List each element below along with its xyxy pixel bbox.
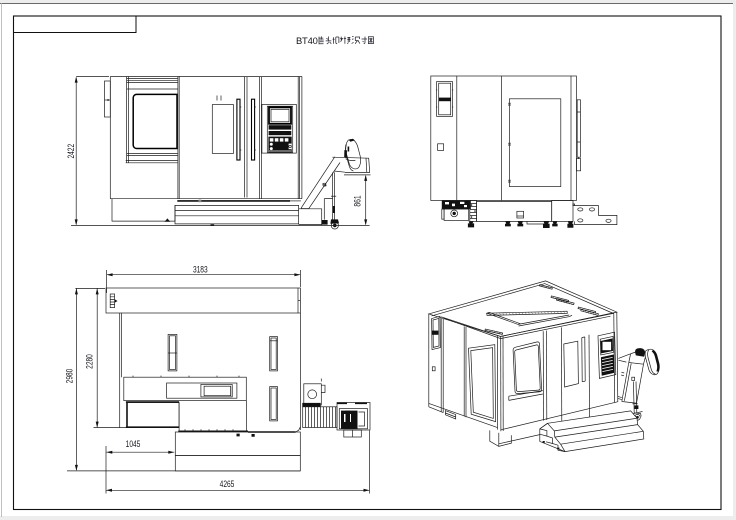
svg-text:4265: 4265 xyxy=(220,479,235,489)
svg-text:2422: 2422 xyxy=(66,144,76,159)
svg-text:1045: 1045 xyxy=(126,439,141,449)
svg-text:861: 861 xyxy=(352,195,362,206)
svg-text:2280: 2280 xyxy=(85,354,95,369)
svg-text:BT40: BT40 xyxy=(296,35,318,46)
svg-text:2980: 2980 xyxy=(65,369,75,384)
svg-text:3183: 3183 xyxy=(193,264,208,274)
